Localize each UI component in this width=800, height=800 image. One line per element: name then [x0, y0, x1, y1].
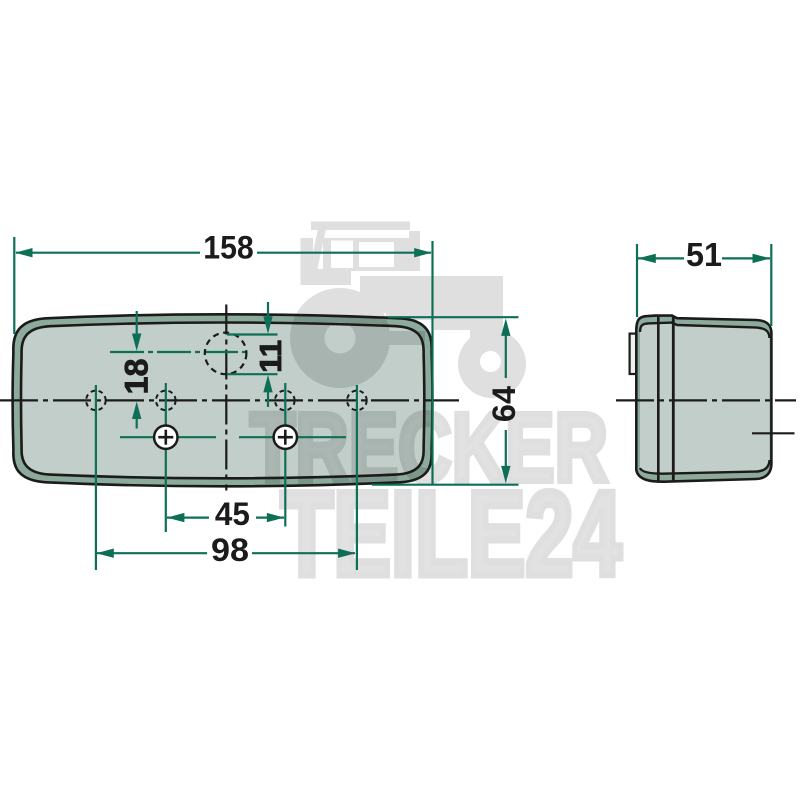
- svg-text:11: 11: [253, 340, 288, 373]
- svg-text:98: 98: [211, 532, 249, 568]
- svg-text:158: 158: [203, 230, 254, 266]
- svg-text:51: 51: [686, 237, 722, 274]
- svg-text:64: 64: [486, 386, 522, 422]
- svg-text:TEILE24: TEILE24: [281, 467, 622, 601]
- svg-text:45: 45: [215, 496, 250, 532]
- svg-text:18: 18: [119, 359, 155, 395]
